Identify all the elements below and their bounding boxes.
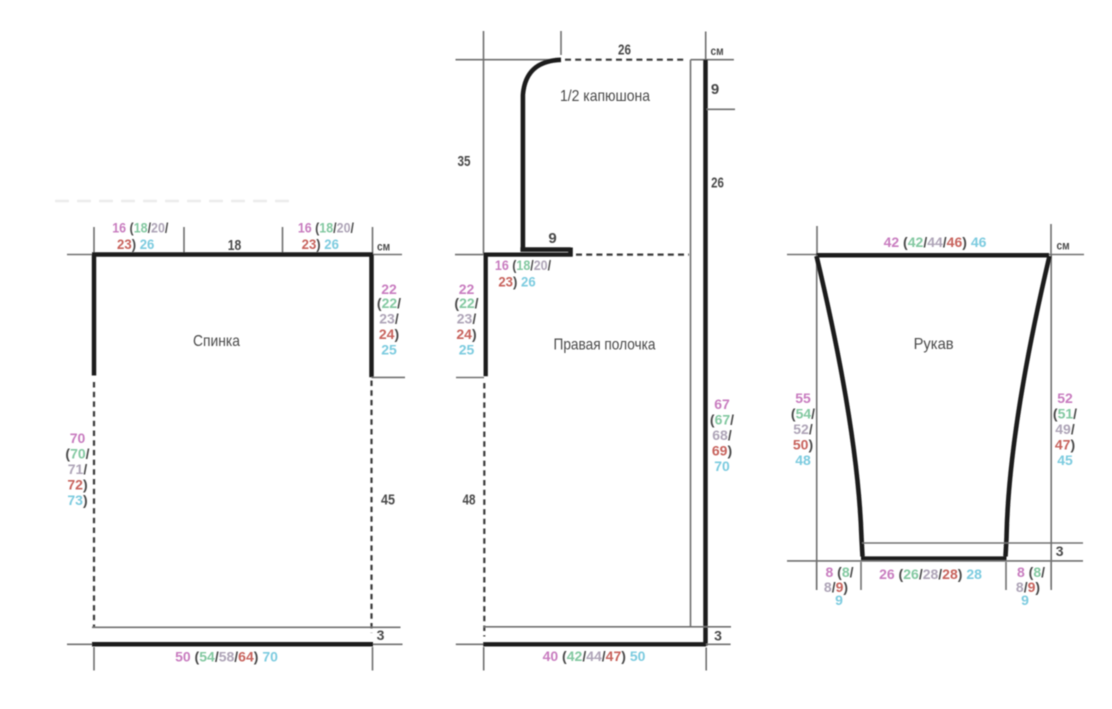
svg-text:26: 26: [618, 41, 631, 58]
svg-text:45: 45: [1057, 452, 1073, 468]
svg-text:50 (54/58/64) 70: 50 (54/58/64) 70: [175, 649, 278, 665]
svg-text:55: 55: [795, 390, 811, 406]
svg-text:Рукав: Рукав: [914, 336, 954, 353]
svg-text:8 (8/: 8 (8/: [1017, 564, 1045, 580]
svg-text:16 (18/20/: 16 (18/20/: [112, 220, 168, 236]
svg-text:70: 70: [70, 430, 86, 446]
svg-text:26: 26: [711, 175, 724, 192]
svg-text:1/2 капюшона: 1/2 капюшона: [560, 88, 650, 105]
svg-text:3: 3: [1056, 543, 1064, 559]
svg-text:72): 72): [67, 477, 87, 493]
svg-text:23) 26: 23) 26: [302, 237, 340, 252]
svg-text:23) 26: 23) 26: [498, 274, 536, 289]
svg-text:23/: 23/: [457, 311, 477, 327]
svg-text:48: 48: [795, 452, 811, 468]
svg-text:69): 69): [712, 443, 732, 459]
svg-text:9: 9: [835, 592, 843, 608]
svg-text:Спинка: Спинка: [193, 333, 240, 350]
svg-text:18: 18: [228, 237, 242, 254]
svg-text:73): 73): [67, 492, 87, 508]
svg-text:24): 24): [456, 326, 476, 342]
svg-text:(54/: (54/: [791, 406, 815, 422]
svg-text:26 (26/28/28) 28: 26 (26/28/28) 28: [879, 566, 982, 582]
svg-text:(22/: (22/: [454, 295, 478, 311]
svg-text:см: см: [1057, 238, 1070, 252]
svg-text:(22/: (22/: [377, 295, 401, 311]
svg-text:9: 9: [1021, 592, 1029, 608]
svg-text:(70/: (70/: [65, 446, 89, 462]
svg-text:35: 35: [458, 153, 471, 170]
svg-text:67: 67: [714, 396, 730, 412]
svg-text:40 (42/44/47) 50: 40 (42/44/47) 50: [543, 648, 646, 664]
svg-text:(51/: (51/: [1053, 406, 1077, 422]
svg-text:16 (18/20/: 16 (18/20/: [495, 257, 551, 273]
svg-text:47): 47): [1055, 437, 1075, 453]
svg-text:42 (42/44/46) 46: 42 (42/44/46) 46: [884, 234, 987, 250]
svg-text:3: 3: [714, 628, 722, 644]
svg-text:25: 25: [459, 342, 475, 358]
svg-text:Правая полочка: Правая полочка: [554, 337, 656, 354]
svg-text:8 (8/: 8 (8/: [825, 564, 853, 580]
svg-text:23) 26: 23) 26: [117, 237, 155, 252]
svg-text:52/: 52/: [793, 421, 813, 437]
svg-text:25: 25: [381, 342, 397, 358]
svg-text:9: 9: [548, 230, 556, 247]
svg-text:71/: 71/: [68, 461, 88, 477]
svg-text:68/: 68/: [712, 427, 732, 443]
svg-text:см: см: [377, 240, 390, 254]
svg-text:70: 70: [714, 458, 730, 474]
svg-text:45: 45: [381, 492, 395, 509]
svg-text:см: см: [711, 44, 724, 58]
svg-text:48: 48: [463, 492, 476, 509]
svg-text:50): 50): [793, 437, 813, 453]
svg-text:23/: 23/: [379, 311, 399, 327]
svg-text:3: 3: [377, 627, 385, 643]
svg-text:24): 24): [379, 326, 399, 342]
svg-text:9: 9: [711, 81, 719, 98]
svg-text:52: 52: [1057, 390, 1073, 406]
svg-text:16 (18/20/: 16 (18/20/: [298, 220, 354, 236]
svg-text:49/: 49/: [1055, 421, 1075, 437]
svg-text:(67/: (67/: [710, 412, 734, 428]
